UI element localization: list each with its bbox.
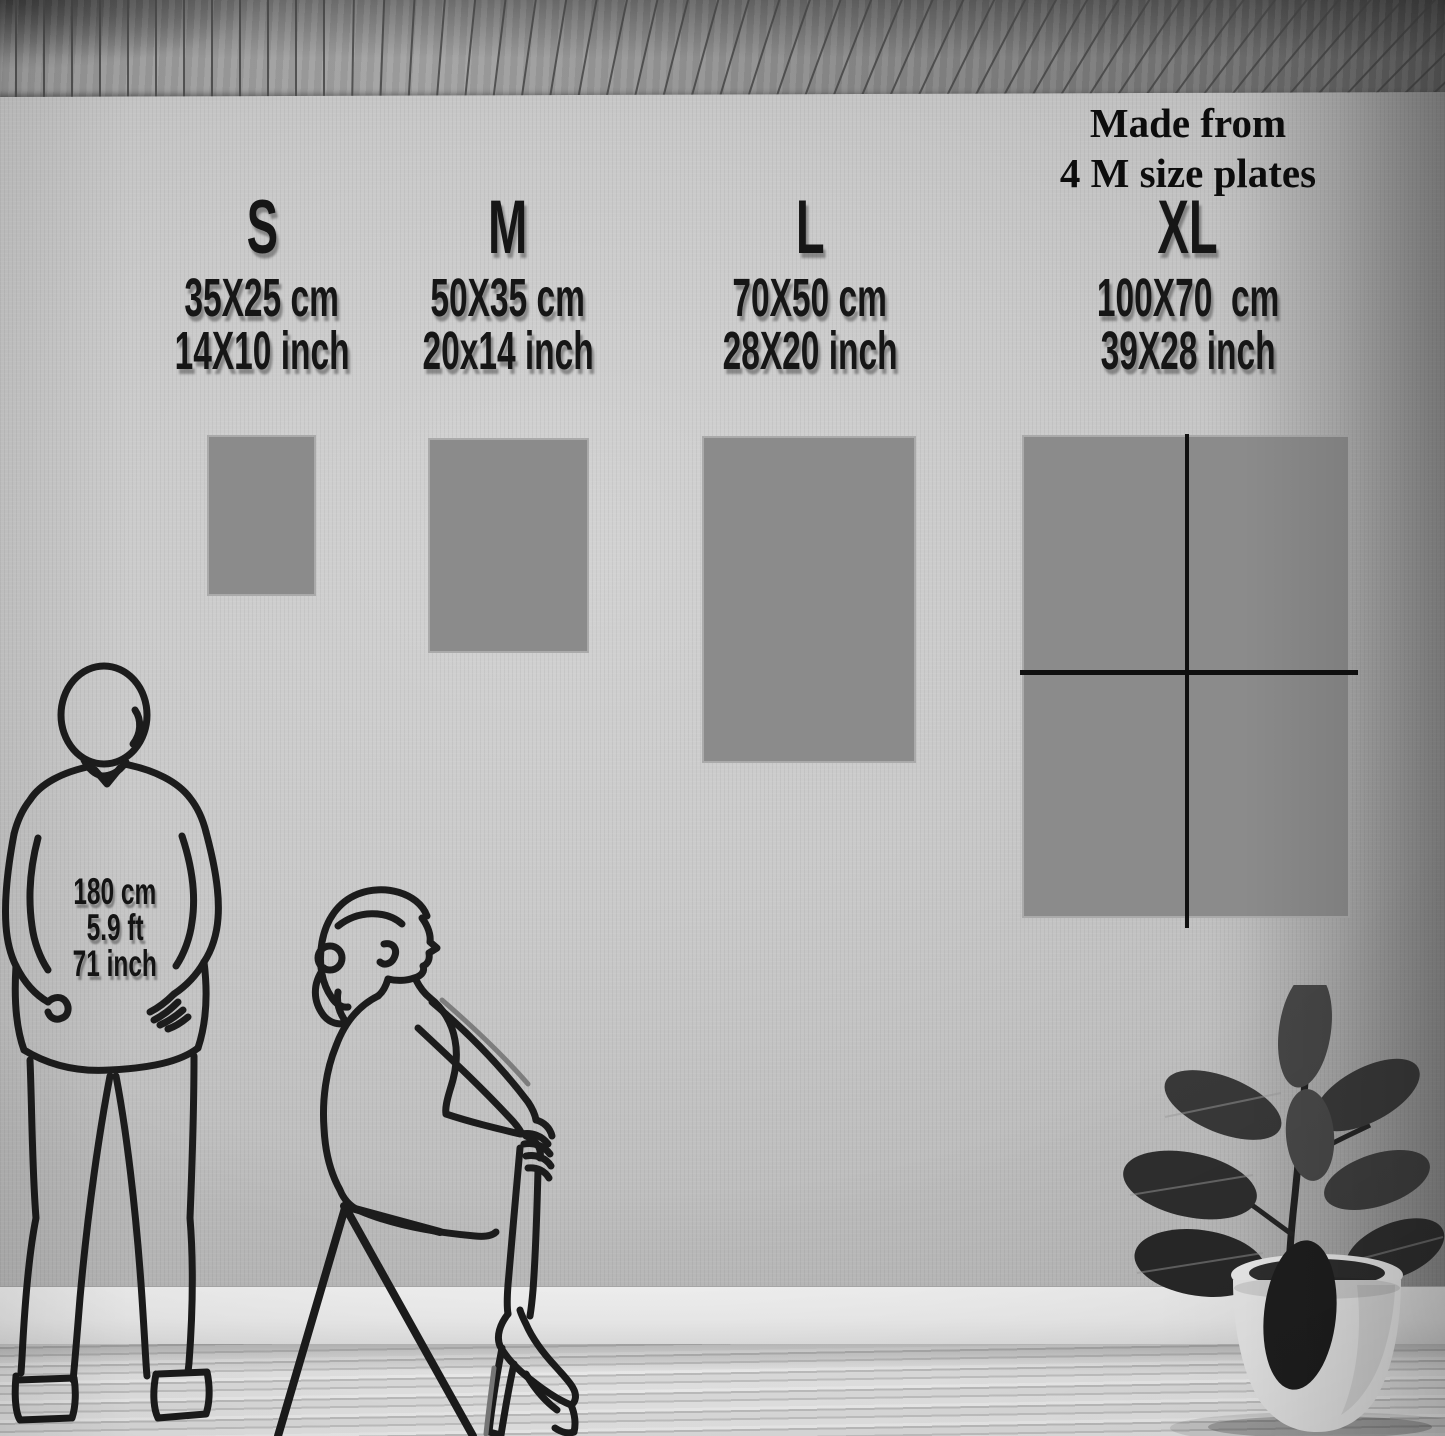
poster-rectangle-m xyxy=(428,438,589,653)
size-label-l: L xyxy=(660,196,960,260)
height-cm: 180 cm xyxy=(20,874,210,910)
size-cm-l: 70X50 cm xyxy=(660,276,960,320)
size-inch-m: 20x14 inch xyxy=(358,329,658,373)
height-ft: 5.9 ft xyxy=(20,910,210,946)
size-label-m: M xyxy=(358,196,658,260)
xl-plate-divider-horizontal xyxy=(1020,670,1358,675)
wood-slat-ceiling xyxy=(0,0,1445,97)
size-guide-scene: Made from 4 M size plates S 35X25 cm 14X… xyxy=(0,0,1445,1436)
person-height-caption: 180 cm 5.9 ft 71 inch xyxy=(20,874,210,982)
sitting-woman-figure xyxy=(270,880,590,1436)
poster-rectangle-s xyxy=(207,435,316,596)
size-cm-xl: 100X70 cm xyxy=(1038,276,1338,320)
standing-man-figure xyxy=(0,658,260,1436)
height-inch: 71 inch xyxy=(20,946,210,982)
size-label-xl: XL xyxy=(1038,196,1338,260)
size-cm-m: 50X35 cm xyxy=(358,276,658,320)
xl-plate-divider-vertical xyxy=(1185,434,1189,928)
xl-note: Made from 4 M size plates xyxy=(1038,98,1338,198)
xl-note-line1: Made from xyxy=(1038,98,1338,148)
potted-plant xyxy=(1105,985,1445,1436)
size-inch-xl: 39X28 inch xyxy=(1038,329,1338,373)
size-inch-l: 28X20 inch xyxy=(660,329,960,373)
poster-rectangle-l xyxy=(702,436,916,763)
